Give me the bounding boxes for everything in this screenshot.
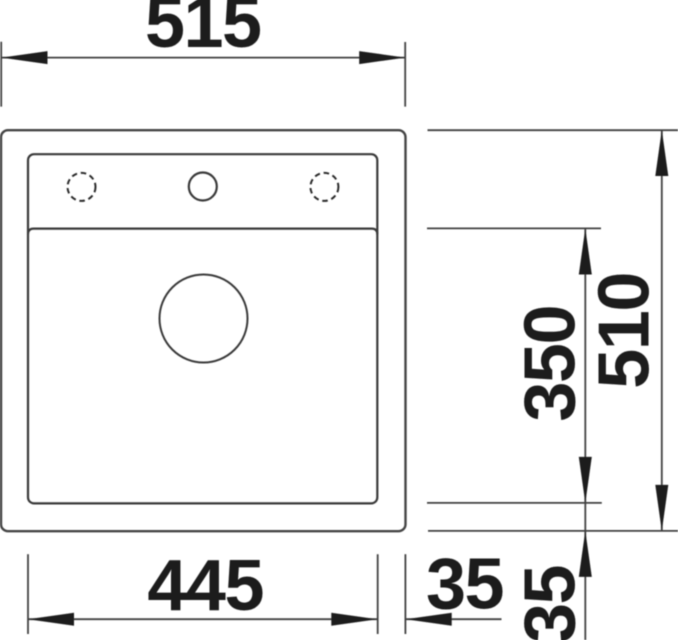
svg-text:445: 445 <box>147 546 263 626</box>
svg-text:35: 35 <box>426 545 504 625</box>
svg-text:350: 350 <box>510 306 590 422</box>
svg-text:35: 35 <box>511 566 591 640</box>
svg-text:515: 515 <box>145 0 261 63</box>
svg-text:510: 510 <box>585 273 665 389</box>
